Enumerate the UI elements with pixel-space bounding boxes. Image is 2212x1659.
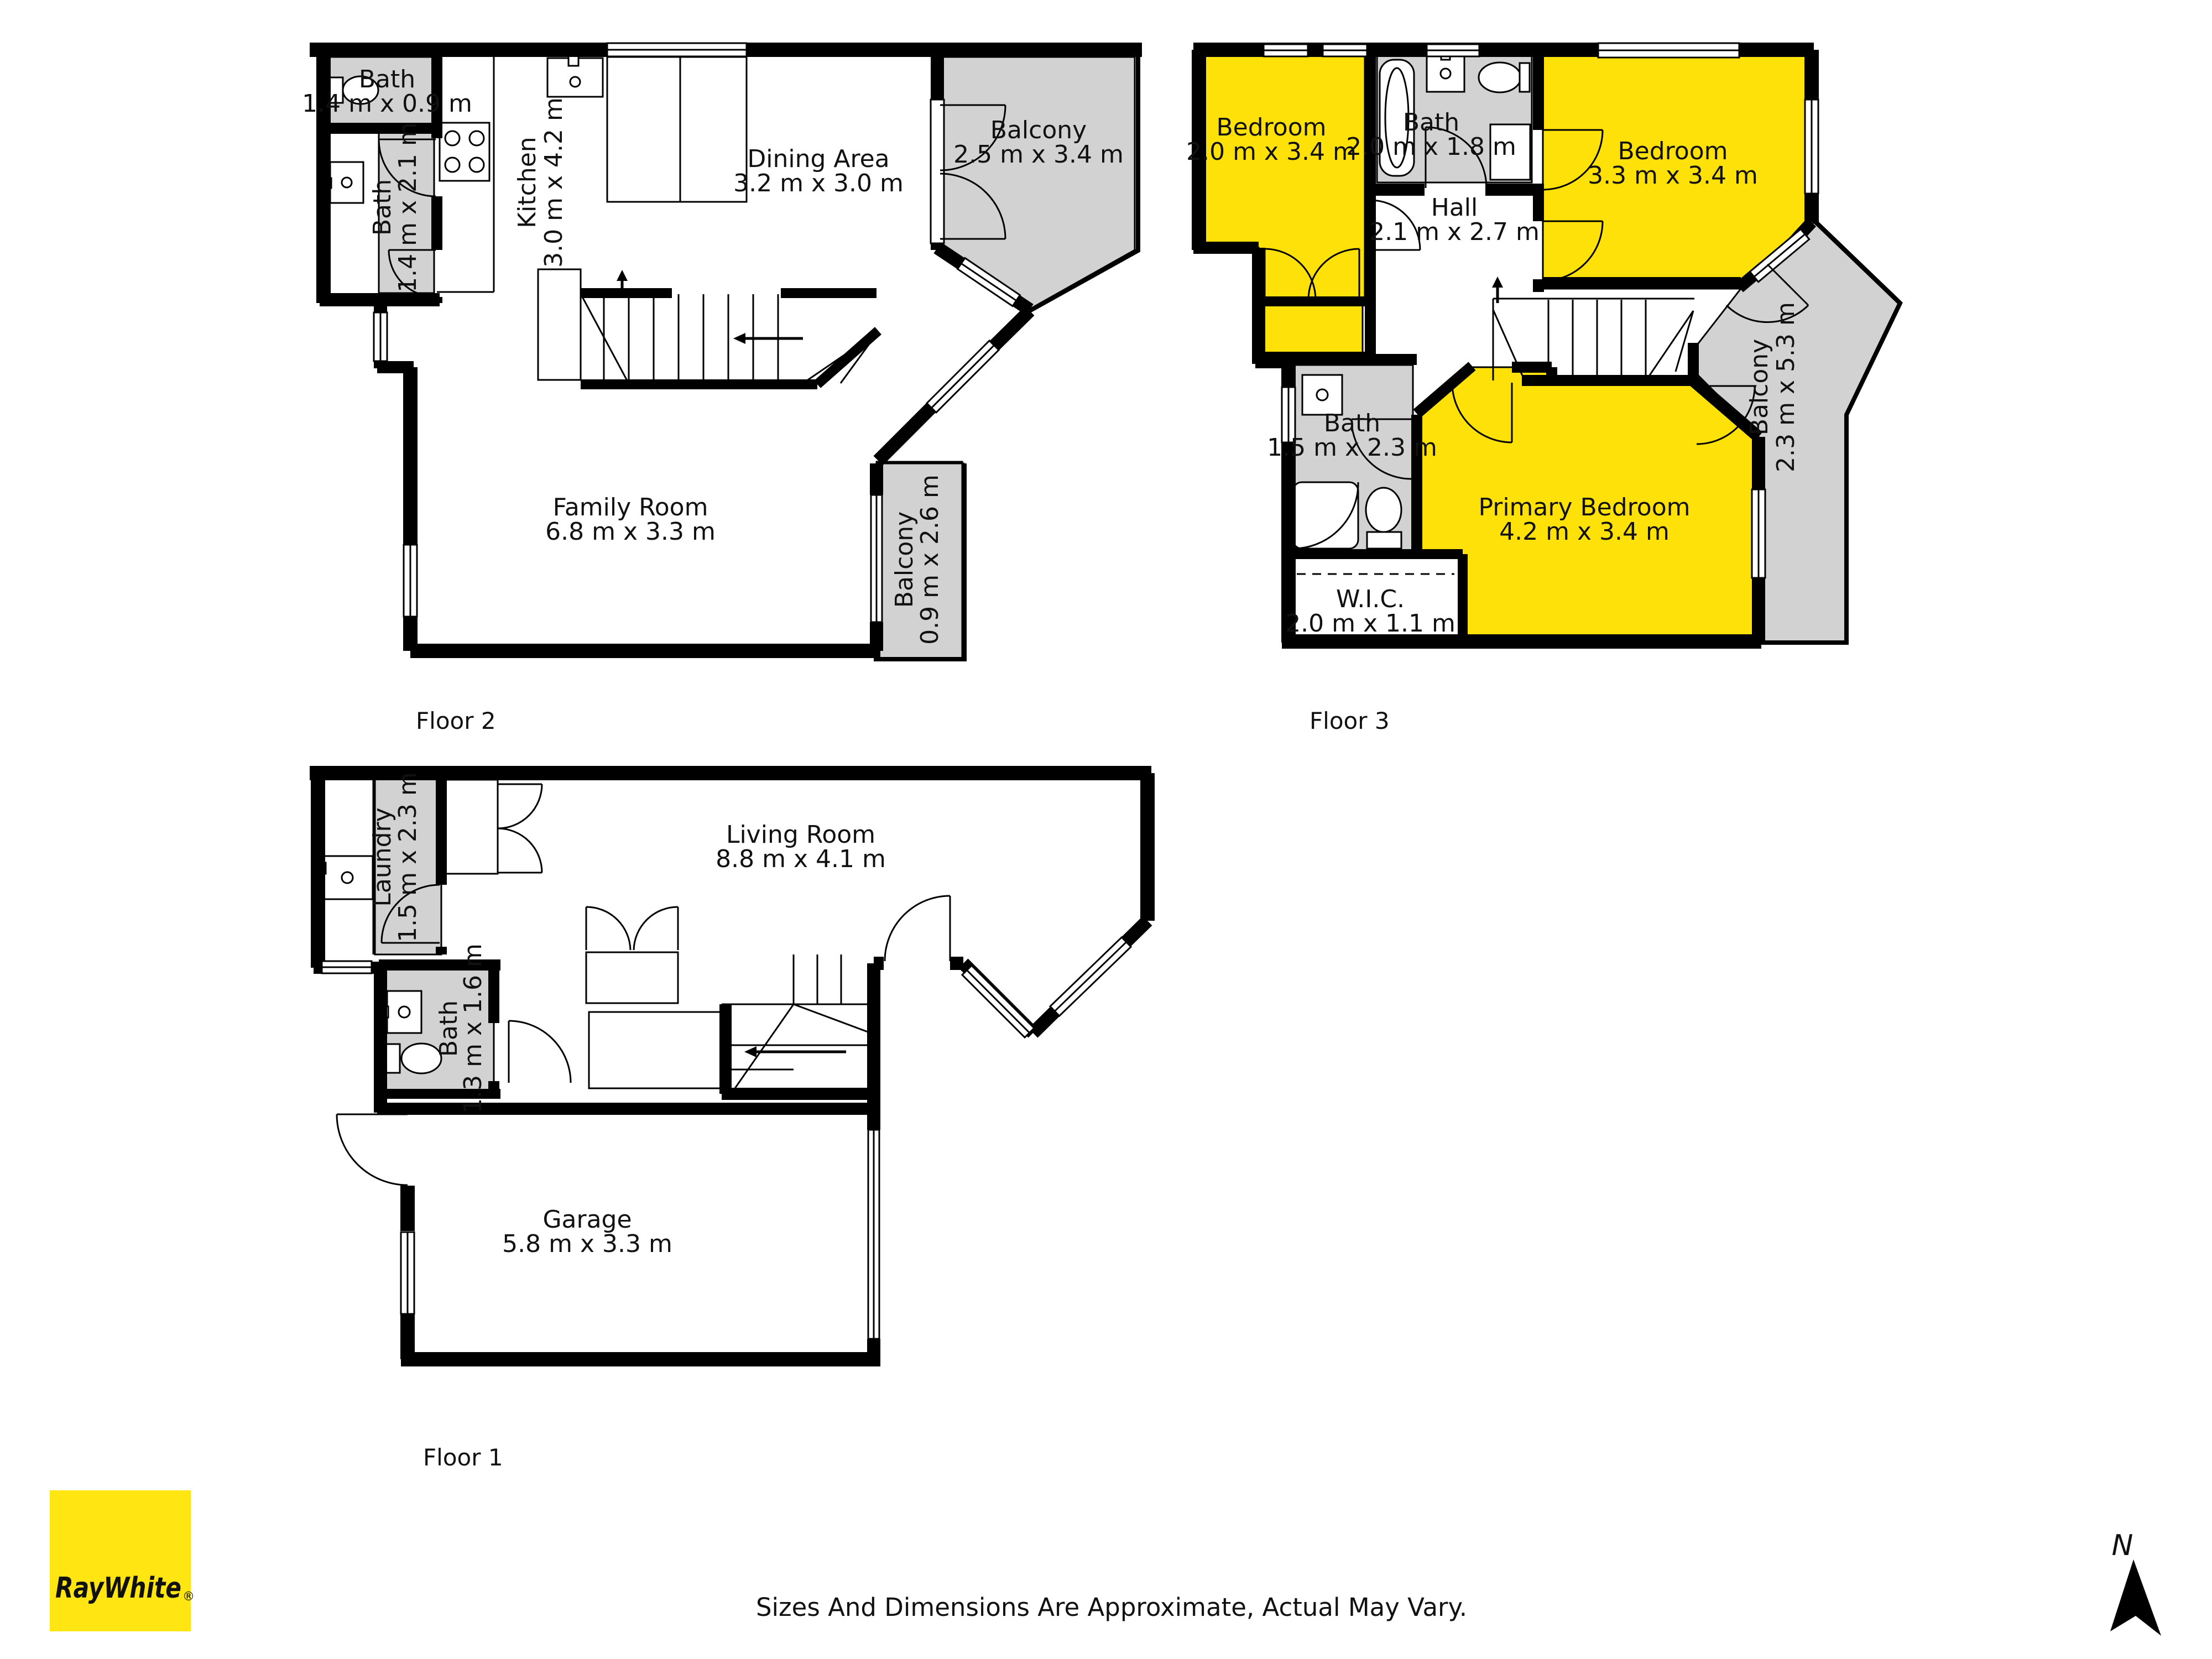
- hall-closet-b: [589, 1012, 722, 1088]
- registered-mark: ®: [182, 1590, 195, 1604]
- room-dims: 1.5 m x 2.3 m: [1267, 434, 1437, 462]
- raywhite-logo-text: RayWhite: [55, 1572, 181, 1605]
- room-dims: 2.0 m x 1.8 m: [1346, 133, 1516, 161]
- floor2-plan: Bath 1.4 m x 0.9 m Bath 1.4 m x 2.1 m Ki…: [302, 43, 1144, 734]
- floor2-label: Floor 2: [416, 707, 496, 734]
- bath-sink-icon: [387, 991, 421, 1033]
- entry-closet: [445, 780, 498, 874]
- room-dims: 2.1 m x 2.7 m: [1369, 218, 1540, 246]
- washer-icon: [322, 856, 373, 899]
- floor1-plan: Laundry 1.5 m x 2.3 m Living Room 8.8 m …: [310, 770, 1151, 1471]
- room-dims: 2.0 m x 3.4 m: [1186, 138, 1357, 166]
- room-dims: 0.9 m x 2.6 m: [916, 474, 944, 645]
- vanity-sink-icon: [330, 162, 363, 203]
- bath-sink-icon: [1427, 55, 1464, 92]
- room-dims: 1.4 m x 0.9 m: [302, 90, 472, 118]
- floor3-bedroom-a-floor: [1199, 53, 1365, 301]
- room-dims: 3.3 m x 3.4 m: [1588, 161, 1758, 190]
- north-compass: N: [2110, 1529, 2161, 1636]
- room-dims: 6.8 m x 3.3 m: [545, 518, 716, 546]
- raywhite-logo-square: [50, 1490, 191, 1631]
- kitchen-cabinet-icon: [607, 57, 747, 202]
- room-dims: 3.0 m x 4.2 m: [540, 97, 568, 268]
- toilet-tank-icon: [1520, 63, 1530, 92]
- room-dims: 2.3 m x 5.3 m: [1772, 302, 1800, 472]
- hall-closet-a: [586, 952, 678, 1003]
- room-dims: 2.5 m x 3.4 m: [953, 140, 1124, 169]
- room-dims: 4.2 m x 3.4 m: [1499, 518, 1670, 546]
- room-dims: 1.5 m x 2.3 m: [394, 772, 422, 942]
- floor3-plan: Bedroom 2.0 m x 3.4 m Bath 2.0 m x 1.8 m…: [1186, 43, 1901, 734]
- room-label: Kitchen: [513, 137, 541, 228]
- shower-icon: [1293, 482, 1358, 549]
- toilet-tank-icon: [1367, 532, 1401, 549]
- branding-logo: RayWhite ®: [50, 1490, 195, 1631]
- disclaimer-text: Sizes And Dimensions Are Approximate, Ac…: [756, 1593, 1467, 1622]
- toilet-bowl-icon: [1366, 488, 1401, 532]
- room-dims: 5.8 m x 3.3 m: [502, 1230, 672, 1258]
- room-label: Balcony: [890, 512, 919, 608]
- floorplan-image: Bath 1.4 m x 0.9 m Bath 1.4 m x 2.1 m Ki…: [0, 0, 2212, 1659]
- room-dims: 2.0 m x 1.1 m: [1285, 609, 1455, 638]
- toilet-tank-ic: [385, 1044, 400, 1073]
- room-label: Balcony: [1745, 339, 1773, 435]
- room-label: Laundry: [368, 807, 397, 906]
- north-arrow-icon: [2110, 1559, 2161, 1636]
- room-dims: 8.8 m x 4.1 m: [716, 845, 886, 873]
- room-dims: 3.2 m x 3.0 m: [733, 169, 904, 197]
- floor3-bedroom-a-closet: [1259, 305, 1363, 354]
- floor3-label: Floor 3: [1310, 707, 1390, 734]
- floor1-label: Floor 1: [423, 1444, 503, 1471]
- toilet-bowl-icon: [1479, 62, 1521, 92]
- room-dims: 1.3 m x 1.6 m: [459, 943, 487, 1114]
- stove-icon: [440, 123, 489, 181]
- room-label: Bath: [368, 179, 397, 236]
- room-dims: 1.4 m x 2.1 m: [394, 122, 422, 293]
- north-label: N: [2112, 1529, 2133, 1562]
